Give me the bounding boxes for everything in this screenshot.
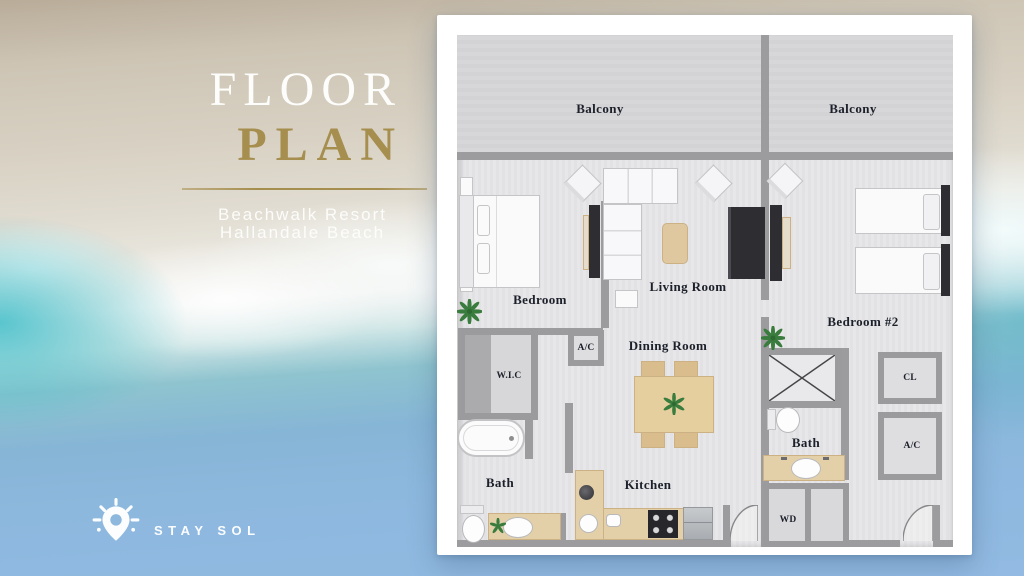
wall-tub-side — [525, 417, 533, 459]
dining-chair — [641, 432, 665, 448]
sectional-sofa-side — [603, 204, 642, 280]
toilet-tank — [767, 409, 776, 430]
label-ac-2: A/C — [904, 441, 921, 451]
coffee-table — [662, 223, 688, 264]
twin-bed-headboard — [941, 185, 950, 236]
title-line-floor: FLOOR — [210, 64, 402, 116]
floor-plan-interior: Balcony Balcony Bedroom Living Room Dini… — [457, 35, 953, 547]
shower-x-mark — [769, 355, 835, 401]
page-title: FLOOR PLAN — [210, 64, 395, 170]
plant-icon — [457, 299, 482, 324]
twin-bed — [855, 247, 947, 294]
label-balcony-2: Balcony — [829, 101, 877, 117]
pillow — [923, 194, 940, 230]
pillow — [477, 243, 490, 274]
faucet-mark — [781, 457, 787, 460]
living-room-tv-unit — [728, 207, 765, 279]
dining-chair — [641, 361, 665, 377]
label-bedroom-2: Bedroom #2 — [827, 314, 898, 330]
wall-bottom-left — [457, 540, 731, 547]
armchair — [767, 163, 804, 200]
plant-icon — [663, 393, 685, 415]
wall-bath-kitchen — [565, 403, 573, 473]
dining-chair — [674, 432, 698, 448]
label-ac-1: A/C — [578, 343, 595, 353]
wall-bottom-right — [935, 540, 953, 547]
label-living-room: Living Room — [650, 279, 727, 295]
armchair — [563, 164, 601, 202]
bathtub — [457, 419, 525, 457]
bedroom-tv — [589, 205, 600, 278]
faucet-mark — [823, 457, 829, 460]
pillow — [477, 205, 490, 236]
entry-door-arc-unit2 — [903, 505, 933, 541]
twin-bed — [855, 188, 947, 234]
label-wic: W.I.C — [497, 371, 522, 381]
toilet-tank — [460, 505, 484, 514]
washer-dryer-closet — [763, 483, 849, 547]
plant-icon — [761, 326, 785, 350]
label-cl: CL — [903, 373, 917, 383]
title-line-plan: PLAN — [210, 120, 404, 170]
double-bed — [473, 195, 540, 288]
kitchen-small-sink — [606, 514, 621, 527]
stove-cooktop — [648, 510, 678, 538]
floor-plan-poster: FLOOR PLAN Beachwalk Resort Hallandale B… — [0, 0, 1024, 576]
label-dining-room: Dining Room — [629, 338, 707, 354]
floor-plan-card: Balcony Balcony Bedroom Living Room Dini… — [437, 15, 972, 555]
brand-lockup: STAY SOL — [90, 498, 261, 548]
toilet-bowl — [776, 407, 800, 433]
armchair — [694, 164, 732, 202]
label-bedroom: Bedroom — [513, 292, 567, 308]
brand-name: STAY SOL — [154, 523, 261, 538]
closet-shelf — [465, 335, 491, 413]
sun-pin-logo-icon — [90, 498, 142, 548]
vanity-sink — [503, 517, 533, 538]
subtitle-line-1: Beachwalk Resort — [150, 206, 455, 224]
subtitle-line-2: Hallandale Beach — [150, 224, 455, 242]
tv-console — [782, 217, 791, 269]
label-kitchen: Kitchen — [625, 477, 672, 493]
entry-door-arc-unit1 — [730, 505, 758, 541]
bed-headboard — [459, 195, 474, 288]
kitchen-sink-round — [579, 485, 594, 500]
vanity-sink — [791, 458, 821, 479]
plant-icon — [490, 518, 506, 534]
wd-divider — [805, 489, 811, 541]
wall-balcony — [457, 152, 953, 160]
sectional-sofa-top — [603, 168, 678, 204]
duvet-fold — [496, 196, 497, 287]
label-balcony-1: Balcony — [576, 101, 624, 117]
twin-bed-headboard — [941, 244, 950, 296]
label-wd: WD — [780, 515, 797, 525]
pillow — [923, 253, 940, 290]
kitchen-round-basin — [579, 514, 598, 533]
label-bath-1: Bath — [486, 475, 514, 491]
toilet-bowl — [462, 515, 485, 543]
bedroom2-tv — [770, 205, 782, 281]
label-bath-2: Bath — [792, 435, 820, 451]
ottoman — [615, 290, 638, 308]
gold-divider — [182, 188, 427, 190]
dining-chair — [674, 361, 698, 377]
promo-panel: FLOOR PLAN Beachwalk Resort Hallandale B… — [0, 0, 437, 576]
refrigerator — [683, 507, 713, 540]
resort-subtitle: Beachwalk Resort Hallandale Beach — [150, 206, 455, 241]
shower-stall — [762, 348, 842, 408]
balcony-floor — [457, 35, 953, 152]
